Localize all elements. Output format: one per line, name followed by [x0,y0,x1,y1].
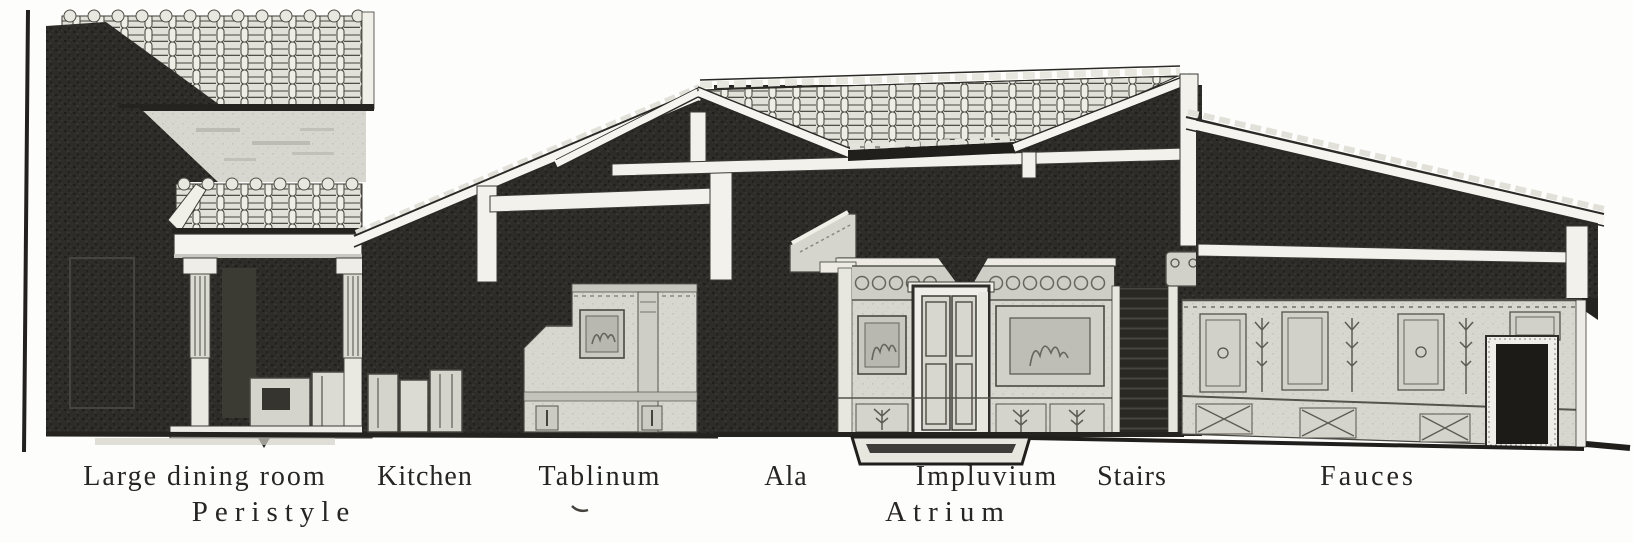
engraving-roman-house-section: Large dining room Kitchen Tablinum Ala I… [0,0,1633,543]
print-flourish [572,506,588,511]
label-atrium: Atrium [885,497,1011,527]
peristyle-roof [168,178,362,234]
atrium-door [908,282,994,436]
label-large-dining-room: Large dining room [83,462,326,492]
fauces-doorway [1486,336,1558,448]
fauces-block [1182,112,1604,448]
label-ala: Ala [764,462,807,492]
kitchen-hearth [368,370,462,432]
label-peristyle: Peristyle [192,497,357,527]
label-kitchen: Kitchen [377,462,473,492]
label-impluvium: Impluvium [916,462,1058,492]
atrium-wall [820,258,1116,436]
label-stairs: Stairs [1097,462,1167,492]
label-fauces: Fauces [1320,462,1416,492]
label-tablinum: Tablinum [539,462,662,492]
fauces-wall [1182,300,1586,448]
impluvium-basin [714,432,1184,464]
left-border-line [24,10,28,452]
